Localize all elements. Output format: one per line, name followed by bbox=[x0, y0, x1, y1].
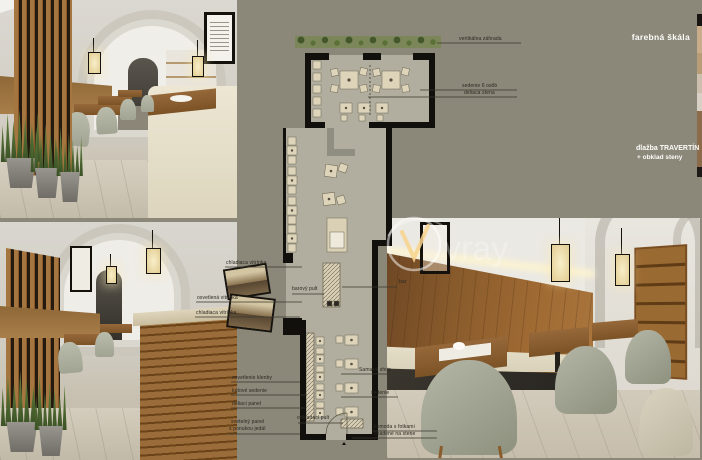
presentation-board: vray vertikálna záhrada sedenie 6 osôb d… bbox=[0, 0, 702, 460]
color-swatch bbox=[697, 14, 702, 26]
lamp-cord bbox=[110, 254, 111, 266]
color-swatch bbox=[697, 53, 702, 74]
watermark-v-icon bbox=[402, 226, 428, 258]
material-heading-line1: dlažba TRAVERTÍN bbox=[636, 145, 699, 152]
wall-frame bbox=[70, 246, 92, 292]
annotation-corner-seating: kútové sedenie bbox=[232, 389, 267, 395]
plate bbox=[170, 95, 192, 102]
color-scale-heading: farebná škála bbox=[600, 32, 690, 42]
armchair bbox=[141, 95, 154, 112]
plant-pot bbox=[37, 426, 64, 456]
watermark-brand: vray bbox=[444, 230, 508, 268]
entrance-arrow bbox=[336, 442, 352, 445]
label-side-counter: odkladací pult bbox=[297, 416, 329, 422]
annotation-dividing-panel: deliaci panel bbox=[232, 402, 261, 408]
annotation-vault-lighting: osvetlenie klenby bbox=[232, 376, 272, 382]
annotation-commode-line2: osadené na stene bbox=[374, 432, 415, 438]
color-swatch bbox=[697, 111, 702, 167]
wood-slat-counter bbox=[140, 314, 237, 460]
annotation-bar: bar bbox=[399, 280, 407, 286]
color-swatch-strip bbox=[697, 14, 702, 177]
annotation-commode-line1: komoda s fotkami bbox=[374, 425, 415, 431]
color-swatch bbox=[697, 74, 702, 93]
annotation-lit-case: osvetlená vitrínka bbox=[197, 296, 238, 302]
plant-pot bbox=[59, 172, 81, 202]
render-bottom-left bbox=[0, 222, 237, 460]
annotation-cooling-case-2: chladiaca vitrínka bbox=[196, 311, 236, 317]
annotation-light-panel-line1: svetelný panel bbox=[231, 420, 264, 426]
lantern-lamp bbox=[192, 56, 204, 77]
armchair bbox=[120, 99, 136, 120]
annotation-cooling-case-1: chladiaca vitrínka bbox=[226, 261, 266, 267]
color-swatch bbox=[697, 26, 702, 53]
plant-leaves bbox=[34, 382, 68, 430]
lamp-cord bbox=[559, 218, 560, 244]
plan-vertical-garden bbox=[295, 36, 441, 48]
annotation-light-panel-line2: s ponukou jedál bbox=[229, 427, 266, 433]
color-swatch bbox=[697, 167, 702, 177]
lantern-lamp bbox=[146, 248, 161, 274]
vray-watermark: vray bbox=[384, 214, 554, 286]
lantern-lamp bbox=[615, 254, 630, 286]
annotation-seating-6: sedenie 6 osôb bbox=[462, 84, 497, 90]
lantern-lamp bbox=[106, 266, 117, 284]
annotation-shop: Samural shop bbox=[359, 368, 391, 374]
lamp-cord bbox=[197, 40, 198, 56]
material-heading-line2: + obklad steny bbox=[637, 154, 682, 161]
annotation-dividing-wall: deliaca stena bbox=[464, 91, 495, 97]
lamp-cord bbox=[93, 38, 94, 52]
plant-leaves bbox=[56, 133, 84, 176]
lamp-cord bbox=[152, 230, 153, 248]
armchair bbox=[95, 332, 114, 357]
potted-plant bbox=[34, 368, 68, 456]
menu-text-lines bbox=[210, 19, 229, 53]
wood-table bbox=[118, 90, 142, 97]
menu-frame bbox=[204, 12, 235, 64]
label-bar-counter: barový pult bbox=[292, 287, 318, 293]
annotation-seating: sedenie bbox=[371, 391, 389, 397]
color-swatch bbox=[697, 93, 702, 111]
potted-plant bbox=[56, 124, 84, 202]
lamp-cord bbox=[621, 228, 622, 254]
lantern-lamp bbox=[88, 52, 101, 74]
annotation-vertical-garden: vertikálna záhrada bbox=[459, 37, 502, 43]
render-top-left bbox=[0, 0, 237, 218]
